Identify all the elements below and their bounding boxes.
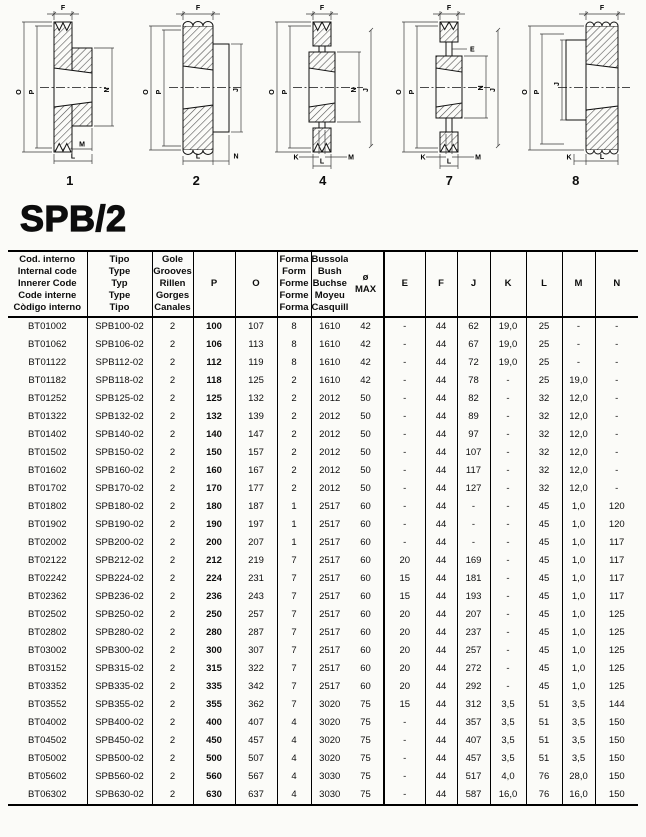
pulley-drawing-1-icon: F O P N M L — [10, 4, 130, 170]
diagram-number: 4 — [261, 173, 385, 188]
cell-o: 231 — [235, 570, 277, 588]
cell-internal-code: BT04002 — [8, 714, 87, 732]
cell-e: 15 — [384, 696, 425, 714]
cell-e: - — [384, 534, 425, 552]
cell-f: 44 — [425, 552, 457, 570]
cell-m: 1,0 — [562, 570, 595, 588]
cell-type: SPB224-02 — [87, 570, 152, 588]
cell-form: 7 — [277, 642, 311, 660]
cell-k: - — [490, 426, 526, 444]
cell-bush-max: 60 — [348, 624, 384, 642]
cell-m: 12,0 — [562, 480, 595, 498]
cell-n: 117 — [595, 570, 638, 588]
cell-bush: 2517 — [311, 606, 348, 624]
cell-m: 3,5 — [562, 714, 595, 732]
cell-j: 97 — [457, 426, 490, 444]
cell-m: 1,0 — [562, 624, 595, 642]
cell-n: 125 — [595, 624, 638, 642]
diagram-number: 2 — [135, 173, 259, 188]
dim-label-l: L — [195, 154, 200, 161]
table-row: BT04002 SPB400-02 2 400 407 4 3020 75 - … — [8, 714, 638, 732]
cell-m: 1,0 — [562, 588, 595, 606]
cell-type: SPB560-02 — [87, 768, 152, 786]
cell-e: 20 — [384, 642, 425, 660]
cell-bush-max: 60 — [348, 570, 384, 588]
dim-label-n: N — [478, 85, 485, 90]
cell-p: 400 — [193, 714, 235, 732]
cell-form: 7 — [277, 552, 311, 570]
cell-type: SPB280-02 — [87, 624, 152, 642]
cell-k: - — [490, 642, 526, 660]
cell-m: 12,0 — [562, 426, 595, 444]
cell-grooves: 2 — [152, 606, 193, 624]
cell-grooves: 2 — [152, 408, 193, 426]
cell-o: 177 — [235, 480, 277, 498]
cell-internal-code: BT01902 — [8, 516, 87, 534]
cell-internal-code: BT05002 — [8, 750, 87, 768]
cell-grooves: 2 — [152, 624, 193, 642]
cell-form: 4 — [277, 786, 311, 805]
cell-f: 44 — [425, 534, 457, 552]
cell-n: - — [595, 372, 638, 390]
cell-l: 45 — [526, 570, 562, 588]
cell-n: - — [595, 444, 638, 462]
cell-p: 500 — [193, 750, 235, 768]
cell-f: 44 — [425, 480, 457, 498]
cell-form: 2 — [277, 372, 311, 390]
table-row: BT06302 SPB630-02 2 630 637 4 3030 75 - … — [8, 786, 638, 805]
cell-type: SPB118-02 — [87, 372, 152, 390]
cell-l: 76 — [526, 768, 562, 786]
dim-label-n: N — [233, 154, 238, 161]
cell-o: 157 — [235, 444, 277, 462]
cell-j: 181 — [457, 570, 490, 588]
cell-grooves: 2 — [152, 714, 193, 732]
cell-n: - — [595, 462, 638, 480]
cell-e: - — [384, 354, 425, 372]
cell-m: 12,0 — [562, 462, 595, 480]
cell-grooves: 2 — [152, 390, 193, 408]
cell-m: 1,0 — [562, 498, 595, 516]
col-header-p: P — [193, 251, 235, 317]
cell-internal-code: BT01602 — [8, 462, 87, 480]
cell-bush: 1610 — [311, 317, 348, 336]
table-row: BT02502 SPB250-02 2 250 257 7 2517 60 20… — [8, 606, 638, 624]
dim-label-j: J — [363, 88, 370, 92]
cell-bush-max: 60 — [348, 534, 384, 552]
cell-o: 362 — [235, 696, 277, 714]
cell-e: 20 — [384, 624, 425, 642]
cell-k: - — [490, 588, 526, 606]
cell-grooves: 2 — [152, 354, 193, 372]
cell-n: 150 — [595, 714, 638, 732]
cell-grooves: 2 — [152, 372, 193, 390]
cell-l: 25 — [526, 354, 562, 372]
cell-form: 2 — [277, 480, 311, 498]
dim-label-l: L — [446, 159, 451, 166]
cell-f: 44 — [425, 498, 457, 516]
cell-o: 139 — [235, 408, 277, 426]
diagram-number: 1 — [8, 173, 132, 188]
col-header-f: F — [425, 251, 457, 317]
cell-p: 315 — [193, 660, 235, 678]
cell-form: 7 — [277, 570, 311, 588]
table-row: BT05602 SPB560-02 2 560 567 4 3030 75 - … — [8, 768, 638, 786]
cell-internal-code: BT03352 — [8, 678, 87, 696]
cell-n: 125 — [595, 660, 638, 678]
cell-f: 44 — [425, 588, 457, 606]
cell-n: 125 — [595, 642, 638, 660]
cell-bush-max: 75 — [348, 786, 384, 805]
cell-type: SPB170-02 — [87, 480, 152, 498]
cell-m: - — [562, 354, 595, 372]
pulley-drawing-8-icon: F O P J K L — [516, 4, 636, 170]
table-row: BT01802 SPB180-02 2 180 187 1 2517 60 - … — [8, 498, 638, 516]
cell-form: 2 — [277, 444, 311, 462]
cell-form: 1 — [277, 498, 311, 516]
cell-form: 7 — [277, 660, 311, 678]
cell-bush: 2517 — [311, 516, 348, 534]
cell-bush-max: 50 — [348, 444, 384, 462]
cell-n: 125 — [595, 606, 638, 624]
dim-label-m: M — [475, 155, 481, 162]
cell-m: 12,0 — [562, 408, 595, 426]
cell-j: 72 — [457, 354, 490, 372]
cell-grooves: 2 — [152, 336, 193, 354]
cell-internal-code: BT02362 — [8, 588, 87, 606]
dim-label-p: P — [156, 89, 163, 94]
dim-label-k: K — [566, 155, 571, 162]
cell-bush-max: 60 — [348, 516, 384, 534]
cell-p: 280 — [193, 624, 235, 642]
cell-m: 3,5 — [562, 750, 595, 768]
cell-m: 12,0 — [562, 390, 595, 408]
dim-label-m: M — [79, 142, 85, 149]
cell-o: 322 — [235, 660, 277, 678]
cell-p: 200 — [193, 534, 235, 552]
cell-type: SPB400-02 — [87, 714, 152, 732]
cell-type: SPB450-02 — [87, 732, 152, 750]
table-row: BT01322 SPB132-02 2 132 139 2 2012 50 - … — [8, 408, 638, 426]
cell-bush: 2517 — [311, 678, 348, 696]
cell-grooves: 2 — [152, 660, 193, 678]
cell-l: 51 — [526, 750, 562, 768]
cell-f: 44 — [425, 660, 457, 678]
cell-m: - — [562, 317, 595, 336]
cell-f: 44 — [425, 444, 457, 462]
cell-n: 120 — [595, 498, 638, 516]
dim-label-k: K — [420, 155, 425, 162]
cell-p: 118 — [193, 372, 235, 390]
spb2-spec-table: Cod. interno Internal code Innerer Code … — [8, 250, 638, 806]
table-row: BT02002 SPB200-02 2 200 207 1 2517 60 - … — [8, 534, 638, 552]
cell-m: 16,0 — [562, 786, 595, 805]
cell-l: 51 — [526, 714, 562, 732]
table-row: BT03552 SPB355-02 2 355 362 7 3020 75 15… — [8, 696, 638, 714]
catalog-page: F O P N M L 1 — [0, 0, 646, 837]
cell-grooves: 2 — [152, 750, 193, 768]
cell-l: 45 — [526, 642, 562, 660]
cell-type: SPB200-02 — [87, 534, 152, 552]
cell-bush: 2012 — [311, 426, 348, 444]
table-row: BT02242 SPB224-02 2 224 231 7 2517 60 15… — [8, 570, 638, 588]
cell-form: 2 — [277, 390, 311, 408]
dim-label-k: K — [293, 155, 298, 162]
cell-bush: 1610 — [311, 336, 348, 354]
cell-grooves: 2 — [152, 696, 193, 714]
cell-p: 100 — [193, 317, 235, 336]
cell-l: 45 — [526, 498, 562, 516]
cell-p: 335 — [193, 678, 235, 696]
cell-form: 2 — [277, 408, 311, 426]
cell-e: - — [384, 372, 425, 390]
cell-e: - — [384, 768, 425, 786]
cell-n: - — [595, 336, 638, 354]
cell-p: 250 — [193, 606, 235, 624]
cell-l: 25 — [526, 372, 562, 390]
cell-k: - — [490, 408, 526, 426]
cell-p: 190 — [193, 516, 235, 534]
cell-internal-code: BT01252 — [8, 390, 87, 408]
cell-grooves: 2 — [152, 678, 193, 696]
cell-f: 44 — [425, 624, 457, 642]
cell-o: 147 — [235, 426, 277, 444]
cell-bush-max: 50 — [348, 480, 384, 498]
cell-type: SPB100-02 — [87, 317, 152, 336]
cell-internal-code: BT03002 — [8, 642, 87, 660]
cell-f: 44 — [425, 768, 457, 786]
cell-j: 107 — [457, 444, 490, 462]
cell-bush: 2517 — [311, 642, 348, 660]
cell-grooves: 2 — [152, 588, 193, 606]
cell-k: 4,0 — [490, 768, 526, 786]
cell-k: 3,5 — [490, 750, 526, 768]
cell-form: 7 — [277, 696, 311, 714]
cell-e: 20 — [384, 678, 425, 696]
cell-grooves: 2 — [152, 552, 193, 570]
cell-o: 113 — [235, 336, 277, 354]
cell-l: 45 — [526, 534, 562, 552]
cell-internal-code: BT03552 — [8, 696, 87, 714]
dim-label-f: F — [195, 5, 200, 12]
cell-o: 125 — [235, 372, 277, 390]
cell-internal-code: BT04502 — [8, 732, 87, 750]
cell-grooves: 2 — [152, 786, 193, 805]
cell-internal-code: BT01802 — [8, 498, 87, 516]
diagram-form-1: F O P N M L 1 — [8, 4, 132, 188]
table-row: BT01502 SPB150-02 2 150 157 2 2012 50 - … — [8, 444, 638, 462]
cell-grooves: 2 — [152, 444, 193, 462]
cell-e: - — [384, 786, 425, 805]
cell-form: 8 — [277, 336, 311, 354]
cell-internal-code: BT01182 — [8, 372, 87, 390]
dim-label-o: O — [16, 89, 23, 95]
cell-f: 44 — [425, 462, 457, 480]
table-row: BT01902 SPB190-02 2 190 197 1 2517 60 - … — [8, 516, 638, 534]
cell-internal-code: BT01002 — [8, 317, 87, 336]
cell-m: - — [562, 336, 595, 354]
cell-form: 7 — [277, 624, 311, 642]
col-header-m: M — [562, 251, 595, 317]
cell-n: - — [595, 426, 638, 444]
cell-l: 51 — [526, 732, 562, 750]
col-header-k: K — [490, 251, 526, 317]
cell-grooves: 2 — [152, 570, 193, 588]
cell-f: 44 — [425, 678, 457, 696]
cell-f: 44 — [425, 786, 457, 805]
cell-l: 32 — [526, 390, 562, 408]
cell-bush: 2517 — [311, 534, 348, 552]
table-row: BT02802 SPB280-02 2 280 287 7 2517 60 20… — [8, 624, 638, 642]
cell-type: SPB106-02 — [87, 336, 152, 354]
cell-j: 67 — [457, 336, 490, 354]
cell-m: 28,0 — [562, 768, 595, 786]
cell-bush: 3030 — [311, 786, 348, 805]
table-row: BT01062 SPB106-02 2 106 113 8 1610 42 - … — [8, 336, 638, 354]
dim-label-f: F — [446, 5, 451, 12]
cell-k: - — [490, 660, 526, 678]
cell-m: 3,5 — [562, 732, 595, 750]
col-header-type: Tipo Type Typ Type Tipo — [87, 251, 152, 317]
cell-k: - — [490, 498, 526, 516]
cell-bush-max: 60 — [348, 642, 384, 660]
cell-k: 19,0 — [490, 336, 526, 354]
cell-p: 300 — [193, 642, 235, 660]
cell-m: 19,0 — [562, 372, 595, 390]
table-body: BT01002 SPB100-02 2 100 107 8 1610 42 - … — [8, 317, 638, 805]
cell-type: SPB630-02 — [87, 786, 152, 805]
cell-j: - — [457, 516, 490, 534]
cell-k: - — [490, 606, 526, 624]
cell-bush-max: 42 — [348, 354, 384, 372]
cell-j: 292 — [457, 678, 490, 696]
cell-j: 89 — [457, 408, 490, 426]
cell-n: 125 — [595, 678, 638, 696]
cell-e: 20 — [384, 606, 425, 624]
cell-internal-code: BT02242 — [8, 570, 87, 588]
cell-l: 32 — [526, 480, 562, 498]
cell-o: 119 — [235, 354, 277, 372]
cell-m: 1,0 — [562, 678, 595, 696]
cell-bush: 2517 — [311, 588, 348, 606]
cell-o: 342 — [235, 678, 277, 696]
cell-f: 44 — [425, 317, 457, 336]
cell-internal-code: BT01122 — [8, 354, 87, 372]
cell-n: 150 — [595, 750, 638, 768]
cell-o: 457 — [235, 732, 277, 750]
cell-p: 180 — [193, 498, 235, 516]
cell-bush: 1610 — [311, 372, 348, 390]
cell-f: 44 — [425, 426, 457, 444]
cell-l: 45 — [526, 678, 562, 696]
cell-n: 117 — [595, 534, 638, 552]
cell-n: - — [595, 390, 638, 408]
cell-bush: 2517 — [311, 498, 348, 516]
cell-k: - — [490, 570, 526, 588]
cell-bush-max: 60 — [348, 588, 384, 606]
cell-f: 44 — [425, 714, 457, 732]
cell-bush-max: 60 — [348, 660, 384, 678]
cell-k: - — [490, 516, 526, 534]
cell-internal-code: BT01502 — [8, 444, 87, 462]
col-header-e: E — [384, 251, 425, 317]
cell-o: 637 — [235, 786, 277, 805]
cell-bush-max: 50 — [348, 390, 384, 408]
cell-l: 32 — [526, 444, 562, 462]
cell-k: - — [490, 678, 526, 696]
cell-e: - — [384, 390, 425, 408]
cell-f: 44 — [425, 516, 457, 534]
cell-p: 140 — [193, 426, 235, 444]
cell-type: SPB112-02 — [87, 354, 152, 372]
cell-l: 25 — [526, 317, 562, 336]
cell-type: SPB300-02 — [87, 642, 152, 660]
dim-label-p: P — [409, 89, 416, 94]
cell-form: 4 — [277, 732, 311, 750]
cell-bush: 3020 — [311, 696, 348, 714]
col-header-form: Forma Form Forme Forme Forma — [277, 251, 311, 317]
table-row: BT01002 SPB100-02 2 100 107 8 1610 42 - … — [8, 317, 638, 336]
cell-type: SPB500-02 — [87, 750, 152, 768]
dim-label-l: L — [71, 154, 76, 161]
cell-grooves: 2 — [152, 642, 193, 660]
cell-n: 117 — [595, 552, 638, 570]
cell-l: 51 — [526, 696, 562, 714]
cell-k: 19,0 — [490, 354, 526, 372]
cell-internal-code: BT02502 — [8, 606, 87, 624]
cell-bush: 1610 — [311, 354, 348, 372]
cell-m: 1,0 — [562, 552, 595, 570]
table-row: BT05002 SPB500-02 2 500 507 4 3020 75 - … — [8, 750, 638, 768]
page-title: SPB/2 — [20, 198, 646, 240]
dim-label-l: L — [320, 159, 325, 166]
diagram-number: 8 — [514, 173, 638, 188]
cell-bush-max: 42 — [348, 317, 384, 336]
cell-bush: 2012 — [311, 444, 348, 462]
cell-type: SPB160-02 — [87, 462, 152, 480]
diagram-form-7: F E O P N J K M L 7 — [388, 4, 512, 188]
dim-label-m: M — [348, 155, 354, 162]
table-row: BT02362 SPB236-02 2 236 243 7 2517 60 15… — [8, 588, 638, 606]
cell-type: SPB315-02 — [87, 660, 152, 678]
cell-bush-max: 75 — [348, 732, 384, 750]
cell-internal-code: BT06302 — [8, 786, 87, 805]
cell-o: 197 — [235, 516, 277, 534]
table-header-row: Cod. interno Internal code Innerer Code … — [8, 251, 638, 317]
cell-grooves: 2 — [152, 732, 193, 750]
cell-type: SPB132-02 — [87, 408, 152, 426]
cell-m: 3,5 — [562, 696, 595, 714]
cell-e: - — [384, 714, 425, 732]
dim-label-p: P — [29, 89, 36, 94]
cell-o: 287 — [235, 624, 277, 642]
cell-k: - — [490, 624, 526, 642]
cell-bush: 2012 — [311, 408, 348, 426]
cell-p: 132 — [193, 408, 235, 426]
cell-bush-max: 50 — [348, 408, 384, 426]
cell-k: - — [490, 552, 526, 570]
col-header-l: L — [526, 251, 562, 317]
cell-j: - — [457, 534, 490, 552]
cell-l: 32 — [526, 426, 562, 444]
cell-n: 117 — [595, 588, 638, 606]
cell-o: 407 — [235, 714, 277, 732]
cell-j: - — [457, 498, 490, 516]
cell-form: 7 — [277, 678, 311, 696]
table-row: BT03152 SPB315-02 2 315 322 7 2517 60 20… — [8, 660, 638, 678]
cell-f: 44 — [425, 606, 457, 624]
cell-grooves: 2 — [152, 462, 193, 480]
